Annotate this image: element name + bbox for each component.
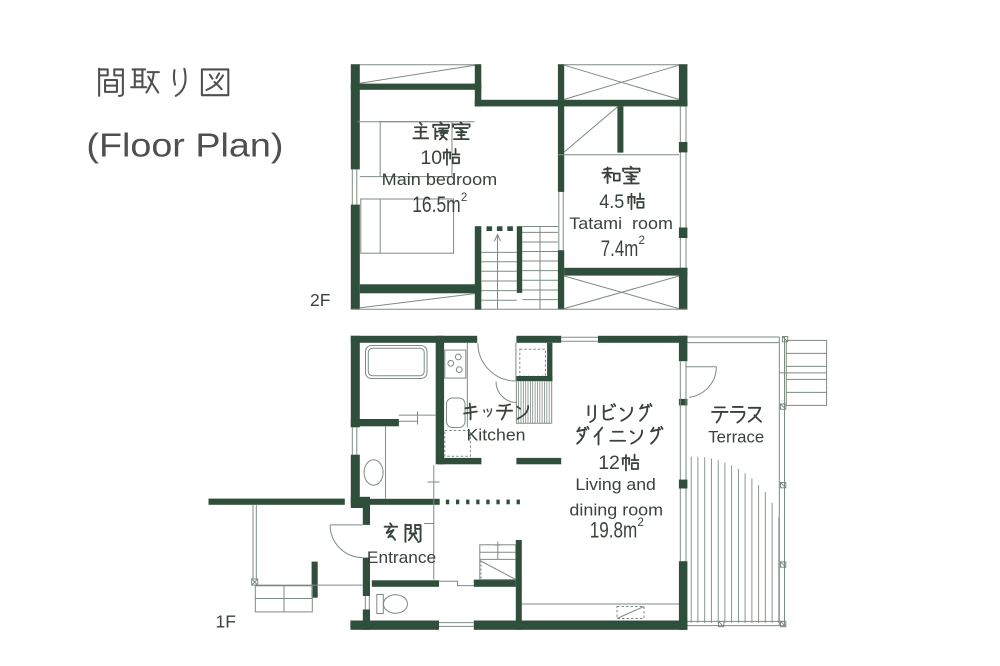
- svg-text:2F: 2F: [310, 290, 330, 310]
- svg-text:4.5: 4.5: [599, 191, 624, 213]
- svg-text:1F: 1F: [216, 612, 236, 632]
- svg-text:Kitchen: Kitchen: [467, 427, 526, 445]
- svg-text:19.8m: 19.8m: [590, 517, 638, 542]
- svg-text:2: 2: [461, 192, 467, 204]
- svg-text:7.4m: 7.4m: [601, 236, 639, 261]
- svg-text:Entrance: Entrance: [367, 549, 436, 567]
- svg-text:12: 12: [598, 452, 620, 474]
- svg-text:Terrace: Terrace: [708, 429, 764, 447]
- svg-text:16.5m: 16.5m: [412, 192, 461, 217]
- svg-text:10: 10: [420, 147, 442, 169]
- svg-text:2: 2: [639, 235, 645, 247]
- svg-text:2: 2: [638, 517, 644, 529]
- svg-text:Living and: Living and: [575, 475, 656, 494]
- svg-text:Main bedroom: Main bedroom: [382, 170, 498, 189]
- svg-text:(Floor Plan): (Floor Plan): [86, 128, 283, 165]
- svg-text:Tatami room: Tatami room: [569, 214, 673, 233]
